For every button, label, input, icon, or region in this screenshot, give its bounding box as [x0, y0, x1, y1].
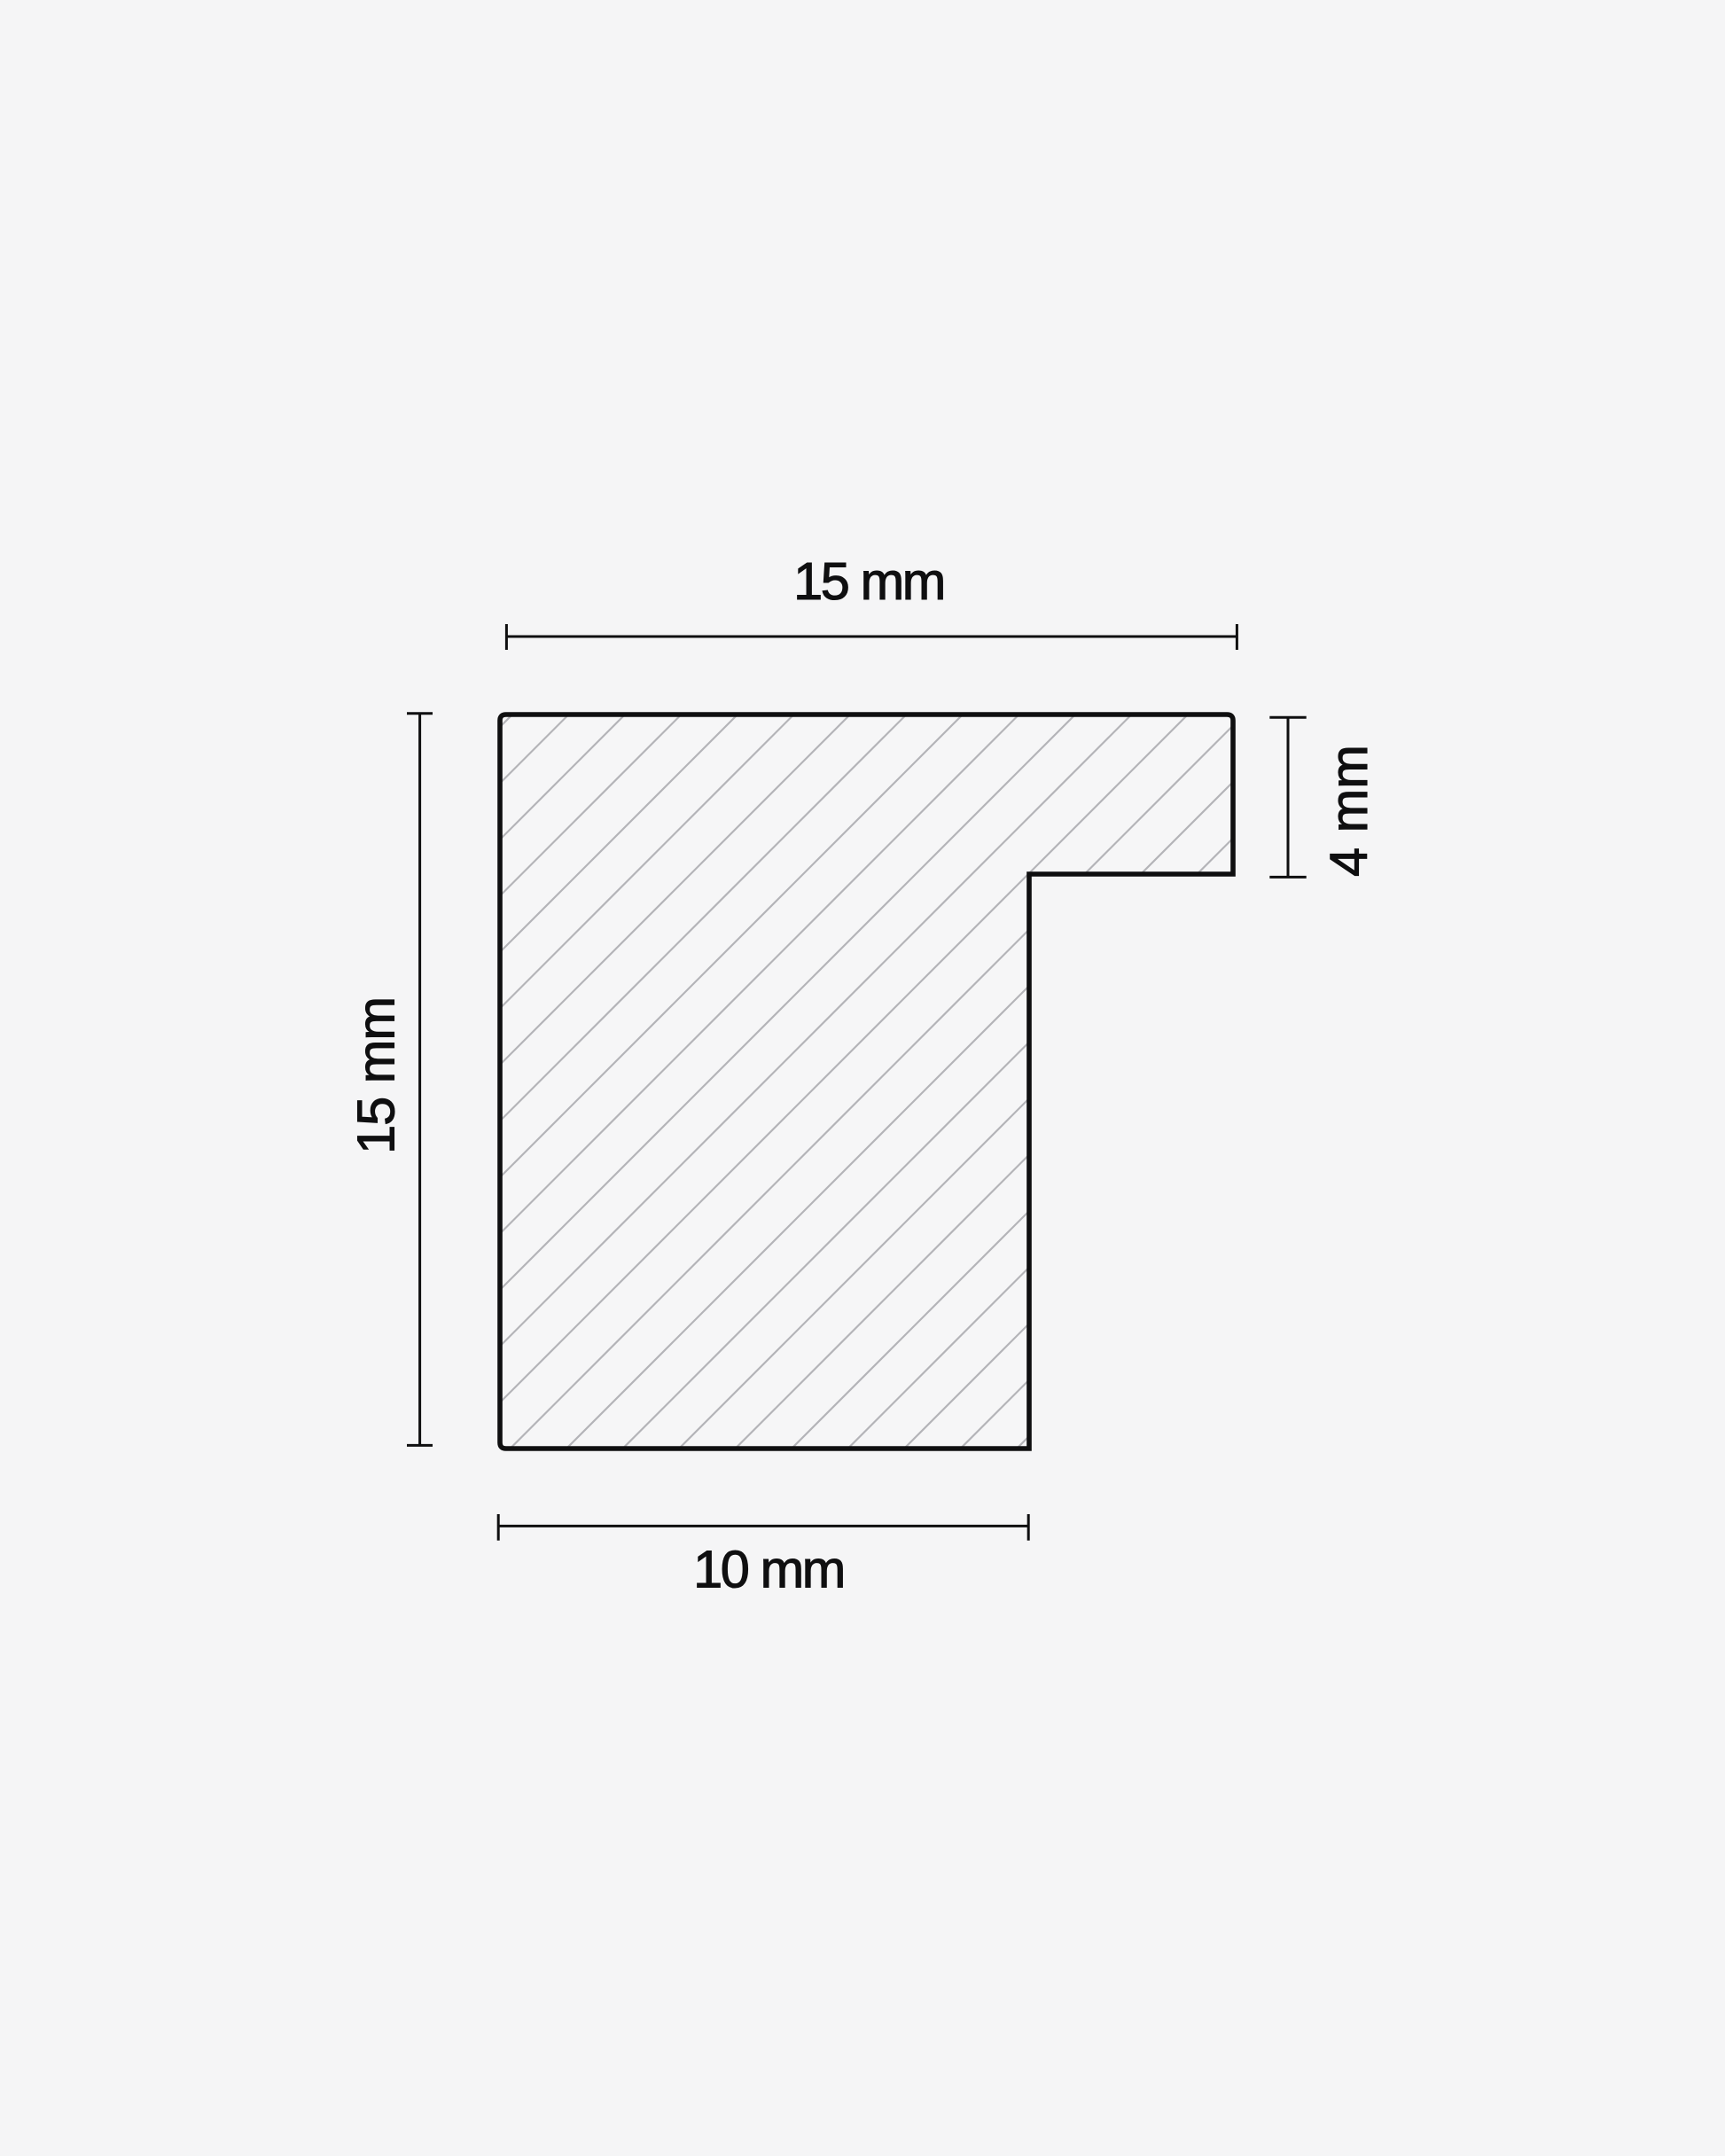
svg-text:15 mm: 15 mm — [793, 551, 944, 611]
svg-text:10 mm: 10 mm — [693, 1540, 844, 1599]
svg-text:15 mm: 15 mm — [347, 997, 406, 1154]
svg-text:4 mm: 4 mm — [1319, 745, 1378, 877]
